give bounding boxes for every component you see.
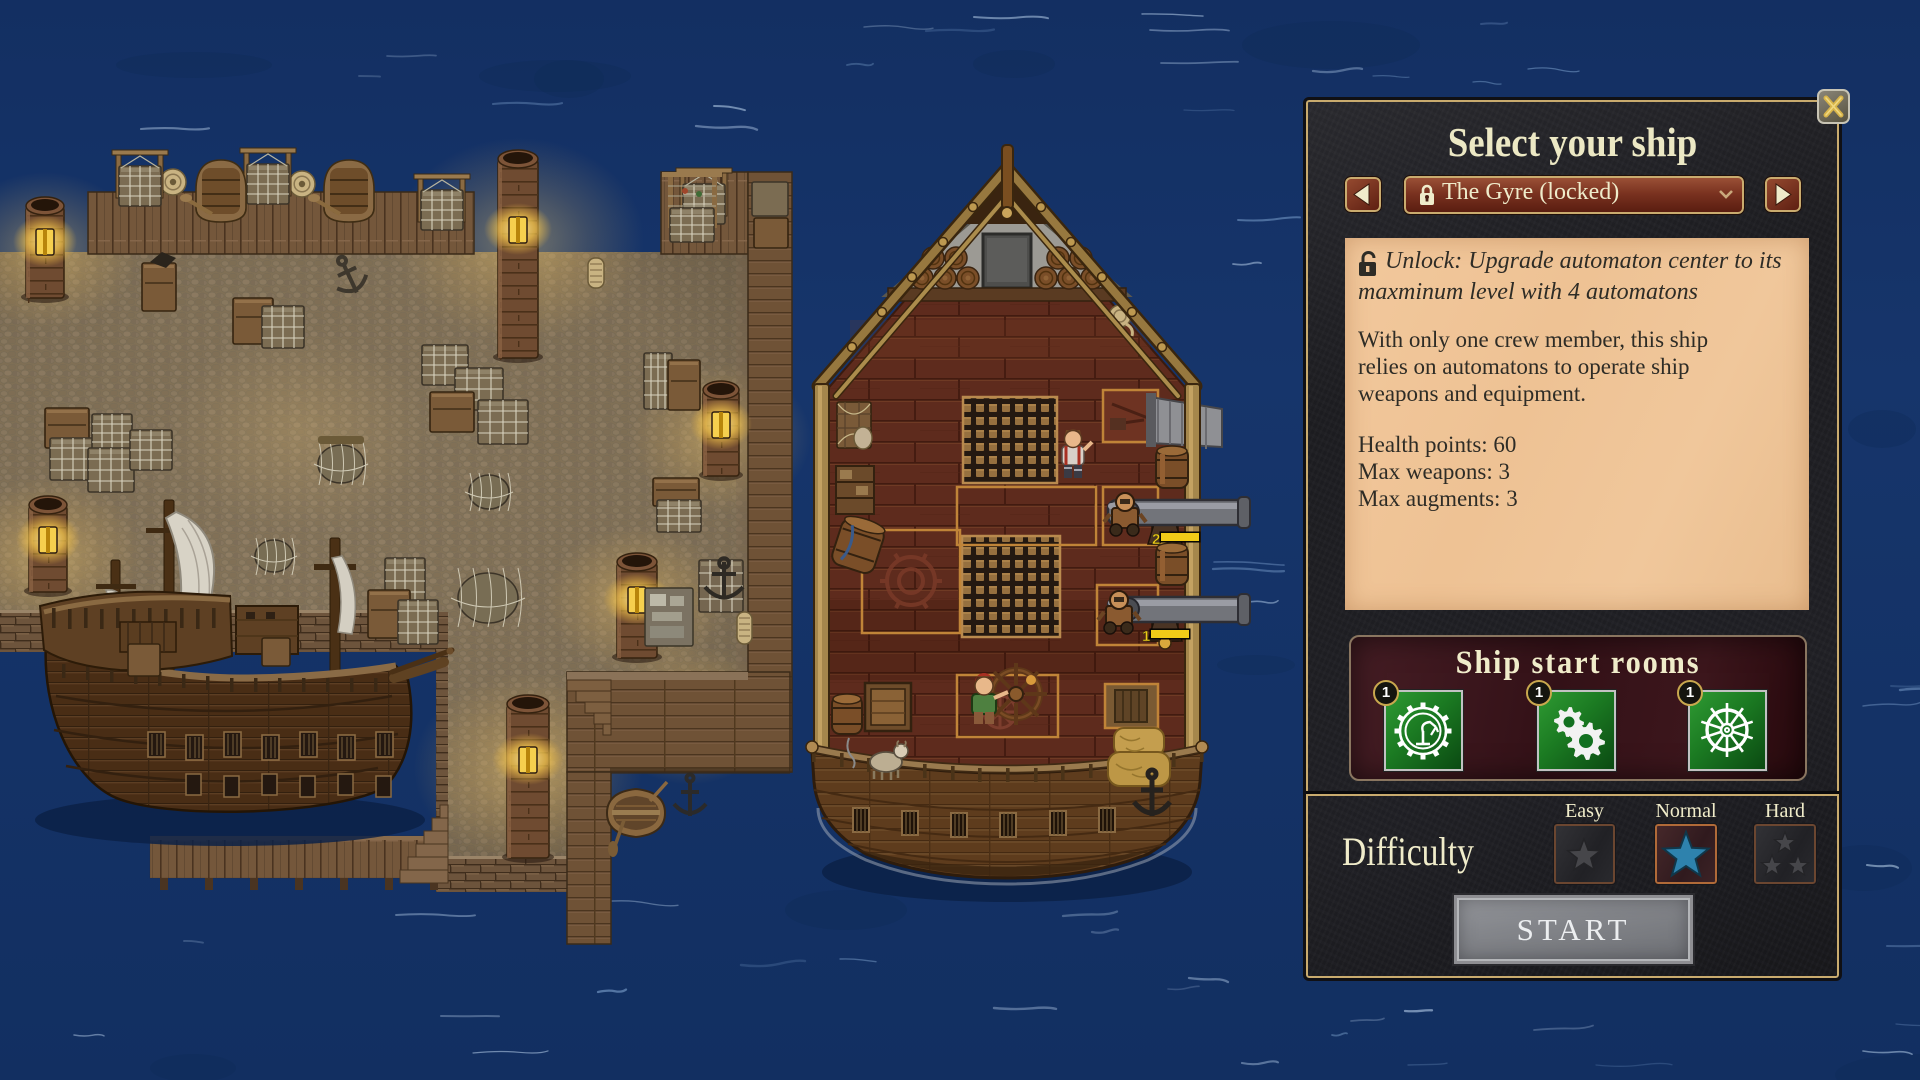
svg-text:1: 1	[1142, 628, 1150, 645]
